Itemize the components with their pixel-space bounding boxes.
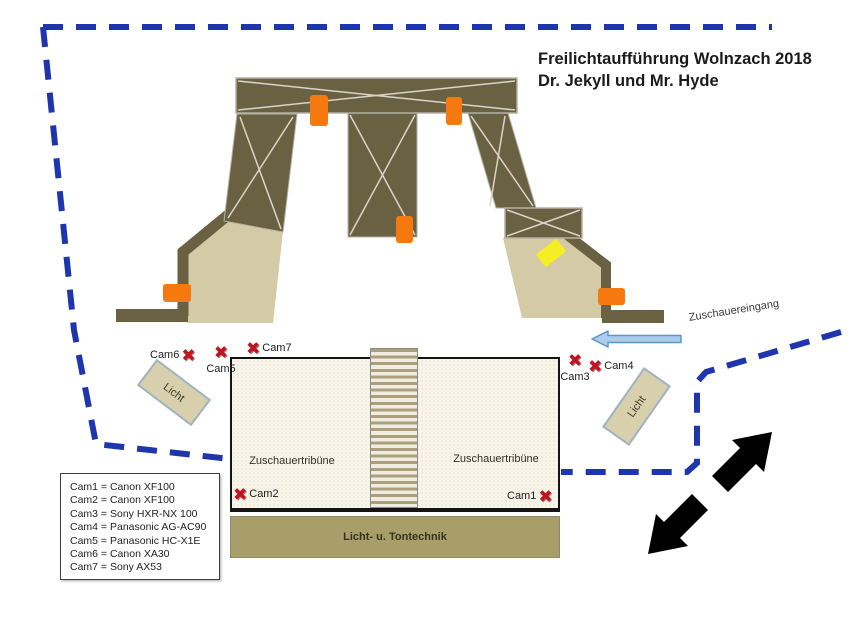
legend-item: Cam4 = Panasonic AG-AC90 <box>70 521 219 534</box>
camera-label: Cam6 <box>150 347 179 362</box>
orange-light-marker <box>598 288 625 305</box>
camera-label: Cam5 <box>206 361 235 376</box>
legend-item: Cam3 = Sony HXR-NX 100 <box>70 508 219 521</box>
camera-marker-cam6: Cam6 ✖ <box>150 347 196 364</box>
camera-x-icon: ✖ <box>233 486 247 503</box>
stage-plan: Freilichtaufführung Wolnzach 2018 Dr. Je… <box>0 0 850 634</box>
legend-item: Cam1 = Canon XF100 <box>70 481 219 494</box>
camera-x-icon: ✖ <box>568 352 582 369</box>
exit-arrow-ne-icon <box>712 432 772 492</box>
stage-ground-right <box>602 310 664 323</box>
camera-marker-cam7: ✖ Cam7 <box>246 340 292 357</box>
light-label: Licht <box>161 381 187 405</box>
orange-light-marker <box>163 284 191 302</box>
camera-label: Cam7 <box>262 340 291 355</box>
page-title: Freilichtaufführung Wolnzach 2018 Dr. Je… <box>538 48 812 92</box>
stage-ground-left <box>116 309 188 322</box>
camera-x-icon: ✖ <box>588 358 602 375</box>
stairs <box>370 348 418 508</box>
legend-item: Cam6 = Canon XA30 <box>70 548 219 561</box>
orange-light-marker <box>310 95 328 126</box>
legend-item: Cam2 = Canon XF100 <box>70 494 219 507</box>
grandstand-right-label: Zuschauertribüne <box>426 453 566 465</box>
orange-light-marker <box>396 216 413 243</box>
camera-x-icon: ✖ <box>538 488 552 505</box>
tech-label: Licht- u. Tontechnik <box>343 531 447 543</box>
perimeter-dashed-right <box>561 332 841 472</box>
camera-label: Cam1 <box>507 488 536 503</box>
camera-label: Cam4 <box>604 358 633 373</box>
light-label: Licht <box>625 394 648 420</box>
grandstand-left-label: Zuschauertribüne <box>222 455 362 467</box>
camera-label: Cam3 <box>560 369 589 384</box>
legend-item: Cam5 = Panasonic HC-X1E <box>70 535 219 548</box>
title-line-2: Dr. Jekyll und Mr. Hyde <box>538 70 812 92</box>
camera-x-icon: ✖ <box>214 344 228 361</box>
camera-marker-cam5: ✖ Cam5 <box>198 344 244 376</box>
tech-box: Licht- u. Tontechnik <box>230 516 560 558</box>
camera-x-icon: ✖ <box>181 347 195 364</box>
camera-marker-cam4: ✖ Cam4 <box>588 358 634 375</box>
legend-item: Cam7 = Sony AX53 <box>70 561 219 574</box>
camera-marker-cam2: ✖ Cam2 <box>233 486 279 503</box>
orange-light-marker <box>446 97 462 125</box>
camera-label: Cam2 <box>249 486 278 501</box>
title-line-1: Freilichtaufführung Wolnzach 2018 <box>538 48 812 70</box>
camera-x-icon: ✖ <box>246 340 260 357</box>
camera-marker-cam1: Cam1 ✖ <box>507 488 553 505</box>
entrance-arrow-icon <box>592 331 681 347</box>
legend-box: Cam1 = Canon XF100 Cam2 = Canon XF100 Ca… <box>60 473 220 580</box>
exit-arrow-sw-icon <box>648 494 708 554</box>
